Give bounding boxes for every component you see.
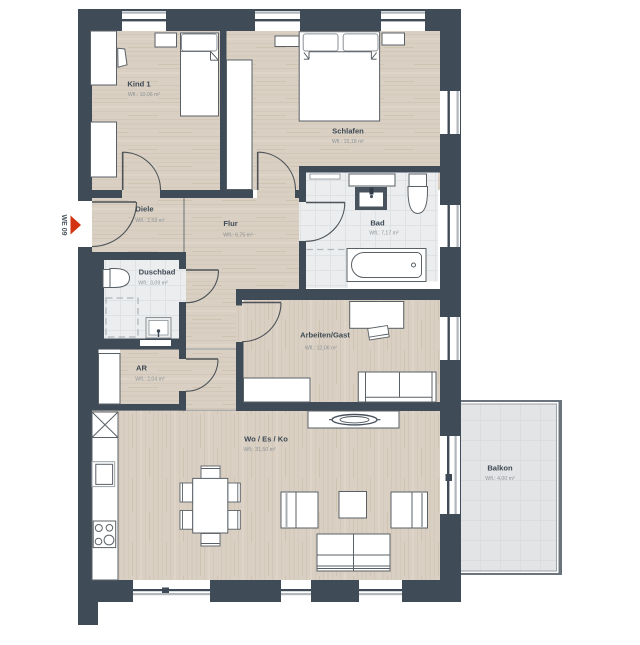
svg-text:Wfl.: 2,59 m²: Wfl.: 2,59 m²	[135, 218, 165, 224]
svg-text:Wfl.: 31,50 m²: Wfl.: 31,50 m²	[243, 447, 276, 453]
svg-text:Schlafen: Schlafen	[332, 127, 364, 136]
svg-text:Bad: Bad	[370, 219, 385, 228]
svg-text:Wfl.: 12,06 m²: Wfl.: 12,06 m²	[305, 346, 338, 352]
svg-text:Balkon: Balkon	[487, 464, 513, 473]
svg-text:Wfl.: 10,06 m²: Wfl.: 10,06 m²	[128, 92, 161, 98]
svg-text:Wfl.: 6,75 m²: Wfl.: 6,75 m²	[223, 233, 253, 239]
svg-text:Wfl.: 7,17 m²: Wfl.: 7,17 m²	[369, 231, 399, 237]
svg-text:AR: AR	[136, 364, 147, 373]
svg-text:WE 09: WE 09	[60, 214, 67, 235]
svg-text:Flur: Flur	[223, 219, 237, 228]
svg-text:Wfl.: 15,18 m²: Wfl.: 15,18 m²	[332, 139, 365, 145]
svg-text:Wfl.: 4,00 m²: Wfl.: 4,00 m²	[485, 476, 515, 482]
svg-text:Wfl.: 3,09 m²: Wfl.: 3,09 m²	[138, 281, 168, 287]
svg-text:Wfl.: 2,04 m²: Wfl.: 2,04 m²	[135, 377, 165, 383]
svg-text:Arbeiten/Gast: Arbeiten/Gast	[300, 331, 350, 340]
svg-text:Duschbad: Duschbad	[139, 268, 176, 277]
svg-text:Diele: Diele	[135, 205, 153, 214]
svg-text:Wo / Es / Ko: Wo / Es / Ko	[244, 435, 288, 444]
svg-text:Kind 1: Kind 1	[127, 80, 151, 89]
